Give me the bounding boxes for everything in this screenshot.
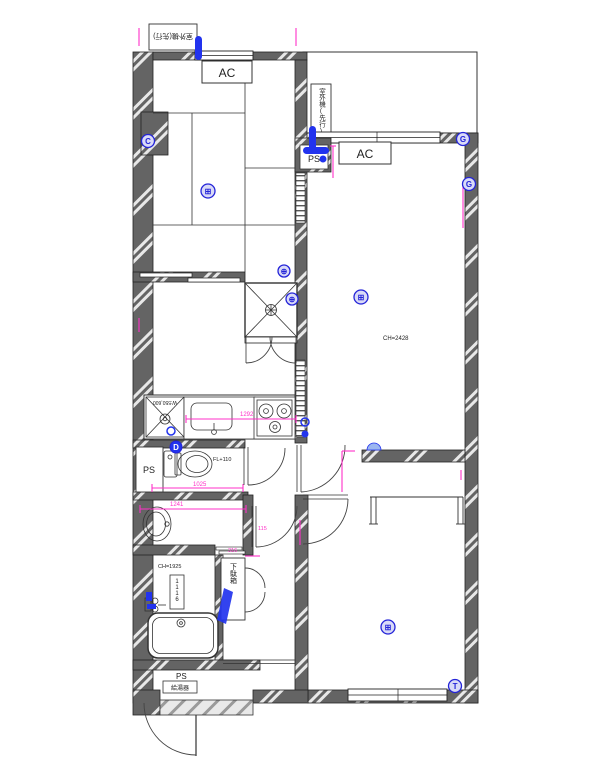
toilet-floor-level: FL+110: [213, 457, 231, 463]
outlet-symbol: [303, 147, 329, 154]
washer-dims: W:550,600: [153, 399, 177, 405]
marker: ⊞: [201, 184, 215, 198]
marker: ⊕: [278, 265, 290, 277]
svg-text:⊞: ⊞: [358, 293, 365, 302]
svg-text:室外機(先行): 室外機(先行): [153, 32, 193, 41]
floor-plan: 室外機(先行): [0, 0, 609, 767]
window-tatami-top: [195, 51, 253, 60]
svg-text:1116: 1116: [174, 579, 180, 603]
outlet-dot: [320, 156, 327, 163]
svg-text:D: D: [173, 443, 179, 452]
svg-text:給湯器: 給湯器: [171, 684, 189, 692]
marker: T: [449, 680, 462, 693]
floor-plan-drawing: 室外機(先行): [0, 0, 609, 767]
porch-step: [160, 700, 253, 715]
toilet-door: [244, 447, 285, 485]
washer-pan: W:550,600: [146, 397, 184, 437]
kitchen-sink: [184, 397, 255, 439]
svg-text:1292: 1292: [240, 412, 254, 418]
switch-symbol: [147, 604, 156, 609]
svg-text:PS: PS: [308, 154, 320, 164]
svg-text:1025: 1025: [193, 482, 207, 488]
bathtub: [148, 613, 218, 658]
svg-text:AC: AC: [357, 147, 374, 161]
vanity-room: 1241 115: [140, 502, 297, 547]
marker: ⊞: [381, 620, 395, 634]
room-living: AC CH=2428: [339, 142, 465, 524]
svg-text:PS: PS: [143, 465, 155, 475]
pillar: [141, 112, 168, 155]
svg-text:316: 316: [228, 548, 237, 554]
marker: G: [463, 178, 476, 191]
ps-bottom: PS 給湯器: [163, 672, 197, 693]
fan-symbol: [266, 305, 277, 316]
outlet-symbol: [195, 36, 202, 60]
svg-text:⊕: ⊕: [289, 295, 296, 304]
living-ceiling-height: CH=2428: [383, 336, 409, 342]
svg-text:T: T: [453, 682, 458, 691]
marker: G: [457, 133, 470, 146]
bedroom-door: [303, 495, 348, 544]
room-tatami: AC: [153, 60, 295, 272]
marker: ⊞: [354, 290, 368, 304]
outlet-dot: [302, 431, 309, 438]
gas-stove: [254, 397, 295, 439]
marker: ⊕: [286, 293, 298, 305]
svg-text:PS: PS: [176, 672, 187, 681]
svg-text:C: C: [145, 137, 151, 146]
windows: [140, 51, 447, 701]
bathroom: CH=1925 1116: [145, 564, 218, 658]
window-living-top: [315, 132, 440, 143]
ac-unit-living: AC: [339, 142, 391, 164]
balcony: 室外機(先行): [303, 52, 477, 135]
svg-text:⊞: ⊞: [205, 187, 212, 196]
bath-ceiling-height: CH=1925: [158, 564, 181, 570]
toilet-fixture: [164, 451, 212, 477]
marker: D: [170, 441, 182, 453]
marker: C: [142, 135, 155, 148]
hall-door-dimension: 115: [258, 526, 267, 532]
svg-text:⊞: ⊞: [385, 623, 392, 632]
svg-text:⊕: ⊕: [281, 267, 288, 276]
svg-text:AC: AC: [219, 66, 236, 80]
svg-text:下駄箱: 下駄箱: [230, 563, 238, 585]
ac-unit-tatami: AC: [202, 61, 252, 83]
svg-text:G: G: [466, 180, 472, 189]
tatami-mat-lines: [153, 60, 295, 272]
svg-text:G: G: [460, 135, 466, 144]
vanity-dimension: 1241: [140, 502, 246, 513]
living-door: [297, 445, 345, 492]
closet-rod: [369, 497, 465, 524]
window-bedroom-bottom: [348, 689, 447, 701]
outdoor-unit-top: 室外機(先行): [149, 24, 197, 50]
switch-symbol: [146, 592, 152, 601]
svg-text:1241: 1241: [170, 502, 184, 508]
outlet-symbol: [309, 126, 316, 150]
toilet-room: PS FL+110 1025: [136, 447, 285, 492]
toilet-dimension: 1025: [152, 482, 243, 492]
detector-symbol: [367, 443, 381, 450]
